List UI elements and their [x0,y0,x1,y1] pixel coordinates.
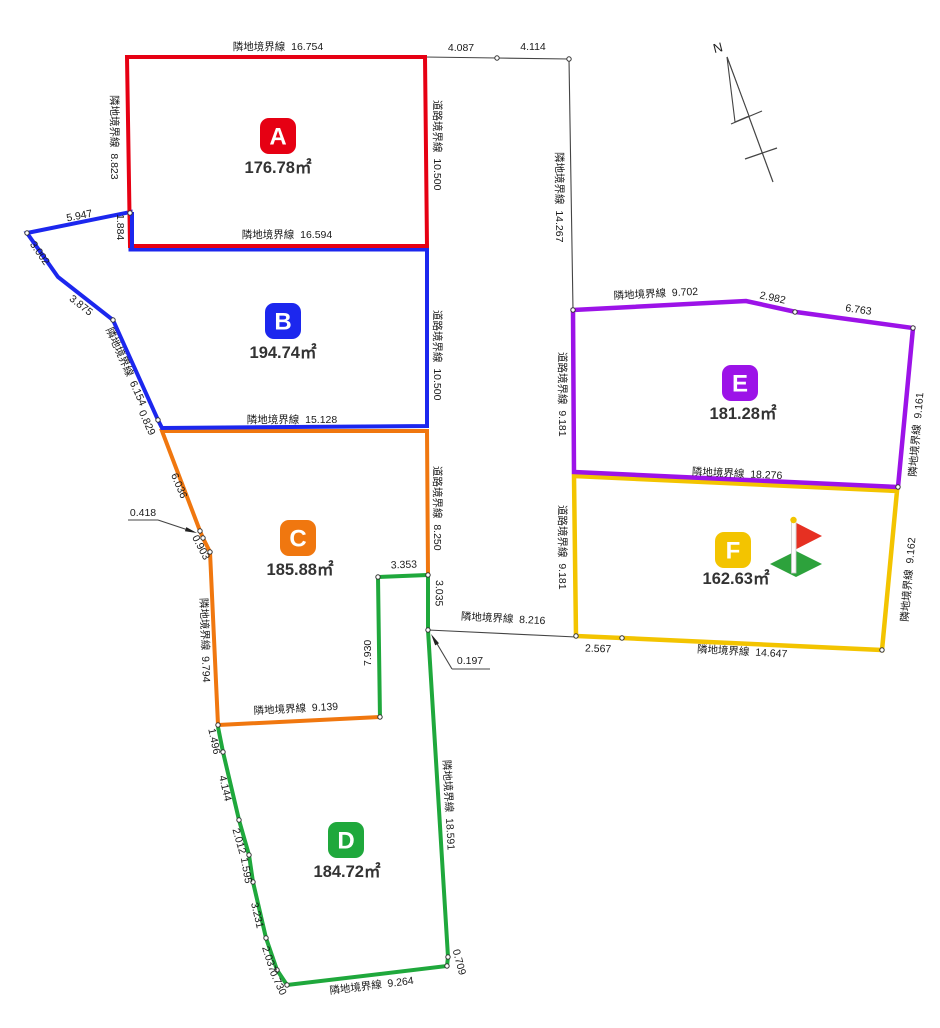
plot-c-letter: C [289,526,306,553]
label-e-top1: 隣地境界線 9.702 [613,285,698,302]
road-edge-line [425,57,573,310]
label-road-4114: 4.114 [520,41,546,53]
label-f-left: 道路境界線 9.181 [556,505,569,590]
label-d-0709: 0.709 [450,948,468,977]
label-f-right: 隣地境界線 9.162 [898,537,918,623]
plot-c-badge: C [280,520,316,556]
label-b-left: 隣地境界線 6.154 [103,325,149,408]
plot-b-badge: B [265,303,301,339]
label-boundary-8216: 隣地境界線 8.216 [461,610,546,627]
label-e-right: 隣地境界線 9.161 [906,392,926,478]
label-b-1884: 1.884 [114,214,126,240]
plot-d-badge: D [328,822,364,858]
vertex-markers [25,56,915,987]
plot-b-area: 194.74㎡ [250,342,317,362]
label-c-bottom: 隣地境界線 9.139 [253,700,338,717]
site-plan-drawing: 隣地境界線 16.754 隣地境界線 8.823 道路境界線 10.500 隣地… [0,0,940,1028]
label-b-bottom: 隣地境界線 15.128 [247,413,338,426]
label-a-top: 隣地境界線 16.754 [233,40,324,53]
label-c-left: 隣地境界線 9.794 [197,598,213,683]
boundary-line-8216 [428,630,576,637]
plot-e-area: 181.28㎡ [710,403,777,423]
label-e-6763: 6.763 [845,302,873,318]
plot-a-area: 176.78㎡ [245,157,312,177]
north-label: N [712,39,725,56]
label-a-left: 隣地境界線 8.823 [108,95,121,180]
label-e-left: 道路境界線 9.181 [556,352,569,437]
label-d-2012: 2.012 [229,827,248,856]
north-arrow: N [712,39,777,182]
label-d-right: 隣地境界線 18.591 [440,759,458,850]
label-b-right: 道路境界線 10.500 [431,310,444,401]
label-c-7930: 7.930 [362,640,374,666]
label-d-0197: 0.197 [457,655,483,667]
label-c-6036: 6.036 [168,471,189,500]
plot-e-letter: E [732,371,748,398]
label-c-right: 道路境界線 8.250 [431,466,444,551]
site-plan-page: 隣地境界線 16.754 隣地境界線 8.823 道路境界線 10.500 隣地… [0,0,940,1028]
plot-d-boundary [218,575,448,985]
plot-f-badge: F [715,532,751,568]
plot-a-letter: A [269,124,286,151]
label-road-4087: 4.087 [448,42,474,54]
label-a-bottom: 隣地境界線 16.594 [242,228,333,241]
plot-b-letter: B [274,309,291,336]
label-d-3231: 3.231 [248,901,266,929]
label-c-0418: 0.418 [130,507,156,519]
plot-e-badge: E [722,365,758,401]
label-c-3353: 3.353 [391,559,418,572]
plot-c-area: 185.88㎡ [267,559,334,579]
plot-a-badge: A [260,118,296,154]
label-c-3035: 3.035 [433,580,445,607]
label-road-14267: 隣地境界線 14.267 [553,152,566,243]
leader-0418 [128,520,197,533]
plot-f-area: 162.63㎡ [703,568,770,588]
plot-d-area: 184.72㎡ [314,861,381,881]
plot-d-letter: D [337,828,354,855]
plot-f-letter: F [726,538,741,565]
label-a-right: 道路境界線 10.500 [431,100,444,191]
label-f-2567: 2.567 [585,643,612,656]
golf-flag-icon [770,517,822,577]
